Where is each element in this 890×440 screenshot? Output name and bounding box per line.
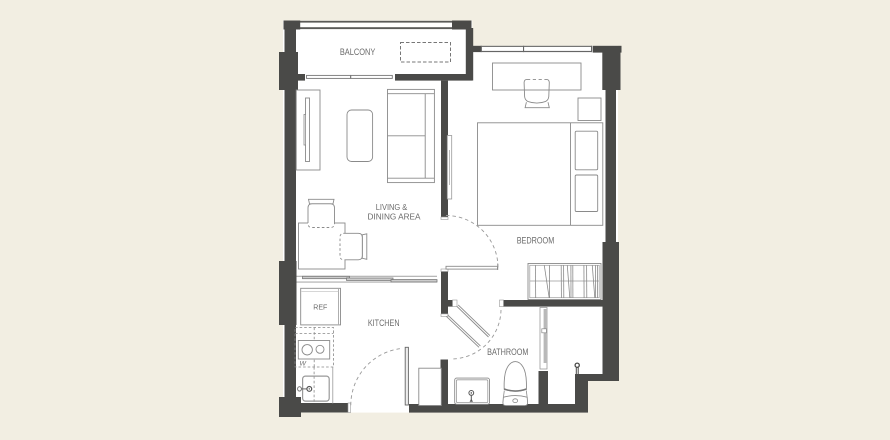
svg-text:BEDROOM: BEDROOM xyxy=(517,236,555,246)
svg-text:BALCONY: BALCONY xyxy=(340,47,376,57)
svg-text:DINING AREA: DINING AREA xyxy=(368,212,421,222)
svg-text:W: W xyxy=(300,360,307,367)
svg-text:KITCHEN: KITCHEN xyxy=(368,318,400,328)
svg-text:REF: REF xyxy=(313,303,327,312)
svg-text:BATHROOM: BATHROOM xyxy=(487,347,528,357)
